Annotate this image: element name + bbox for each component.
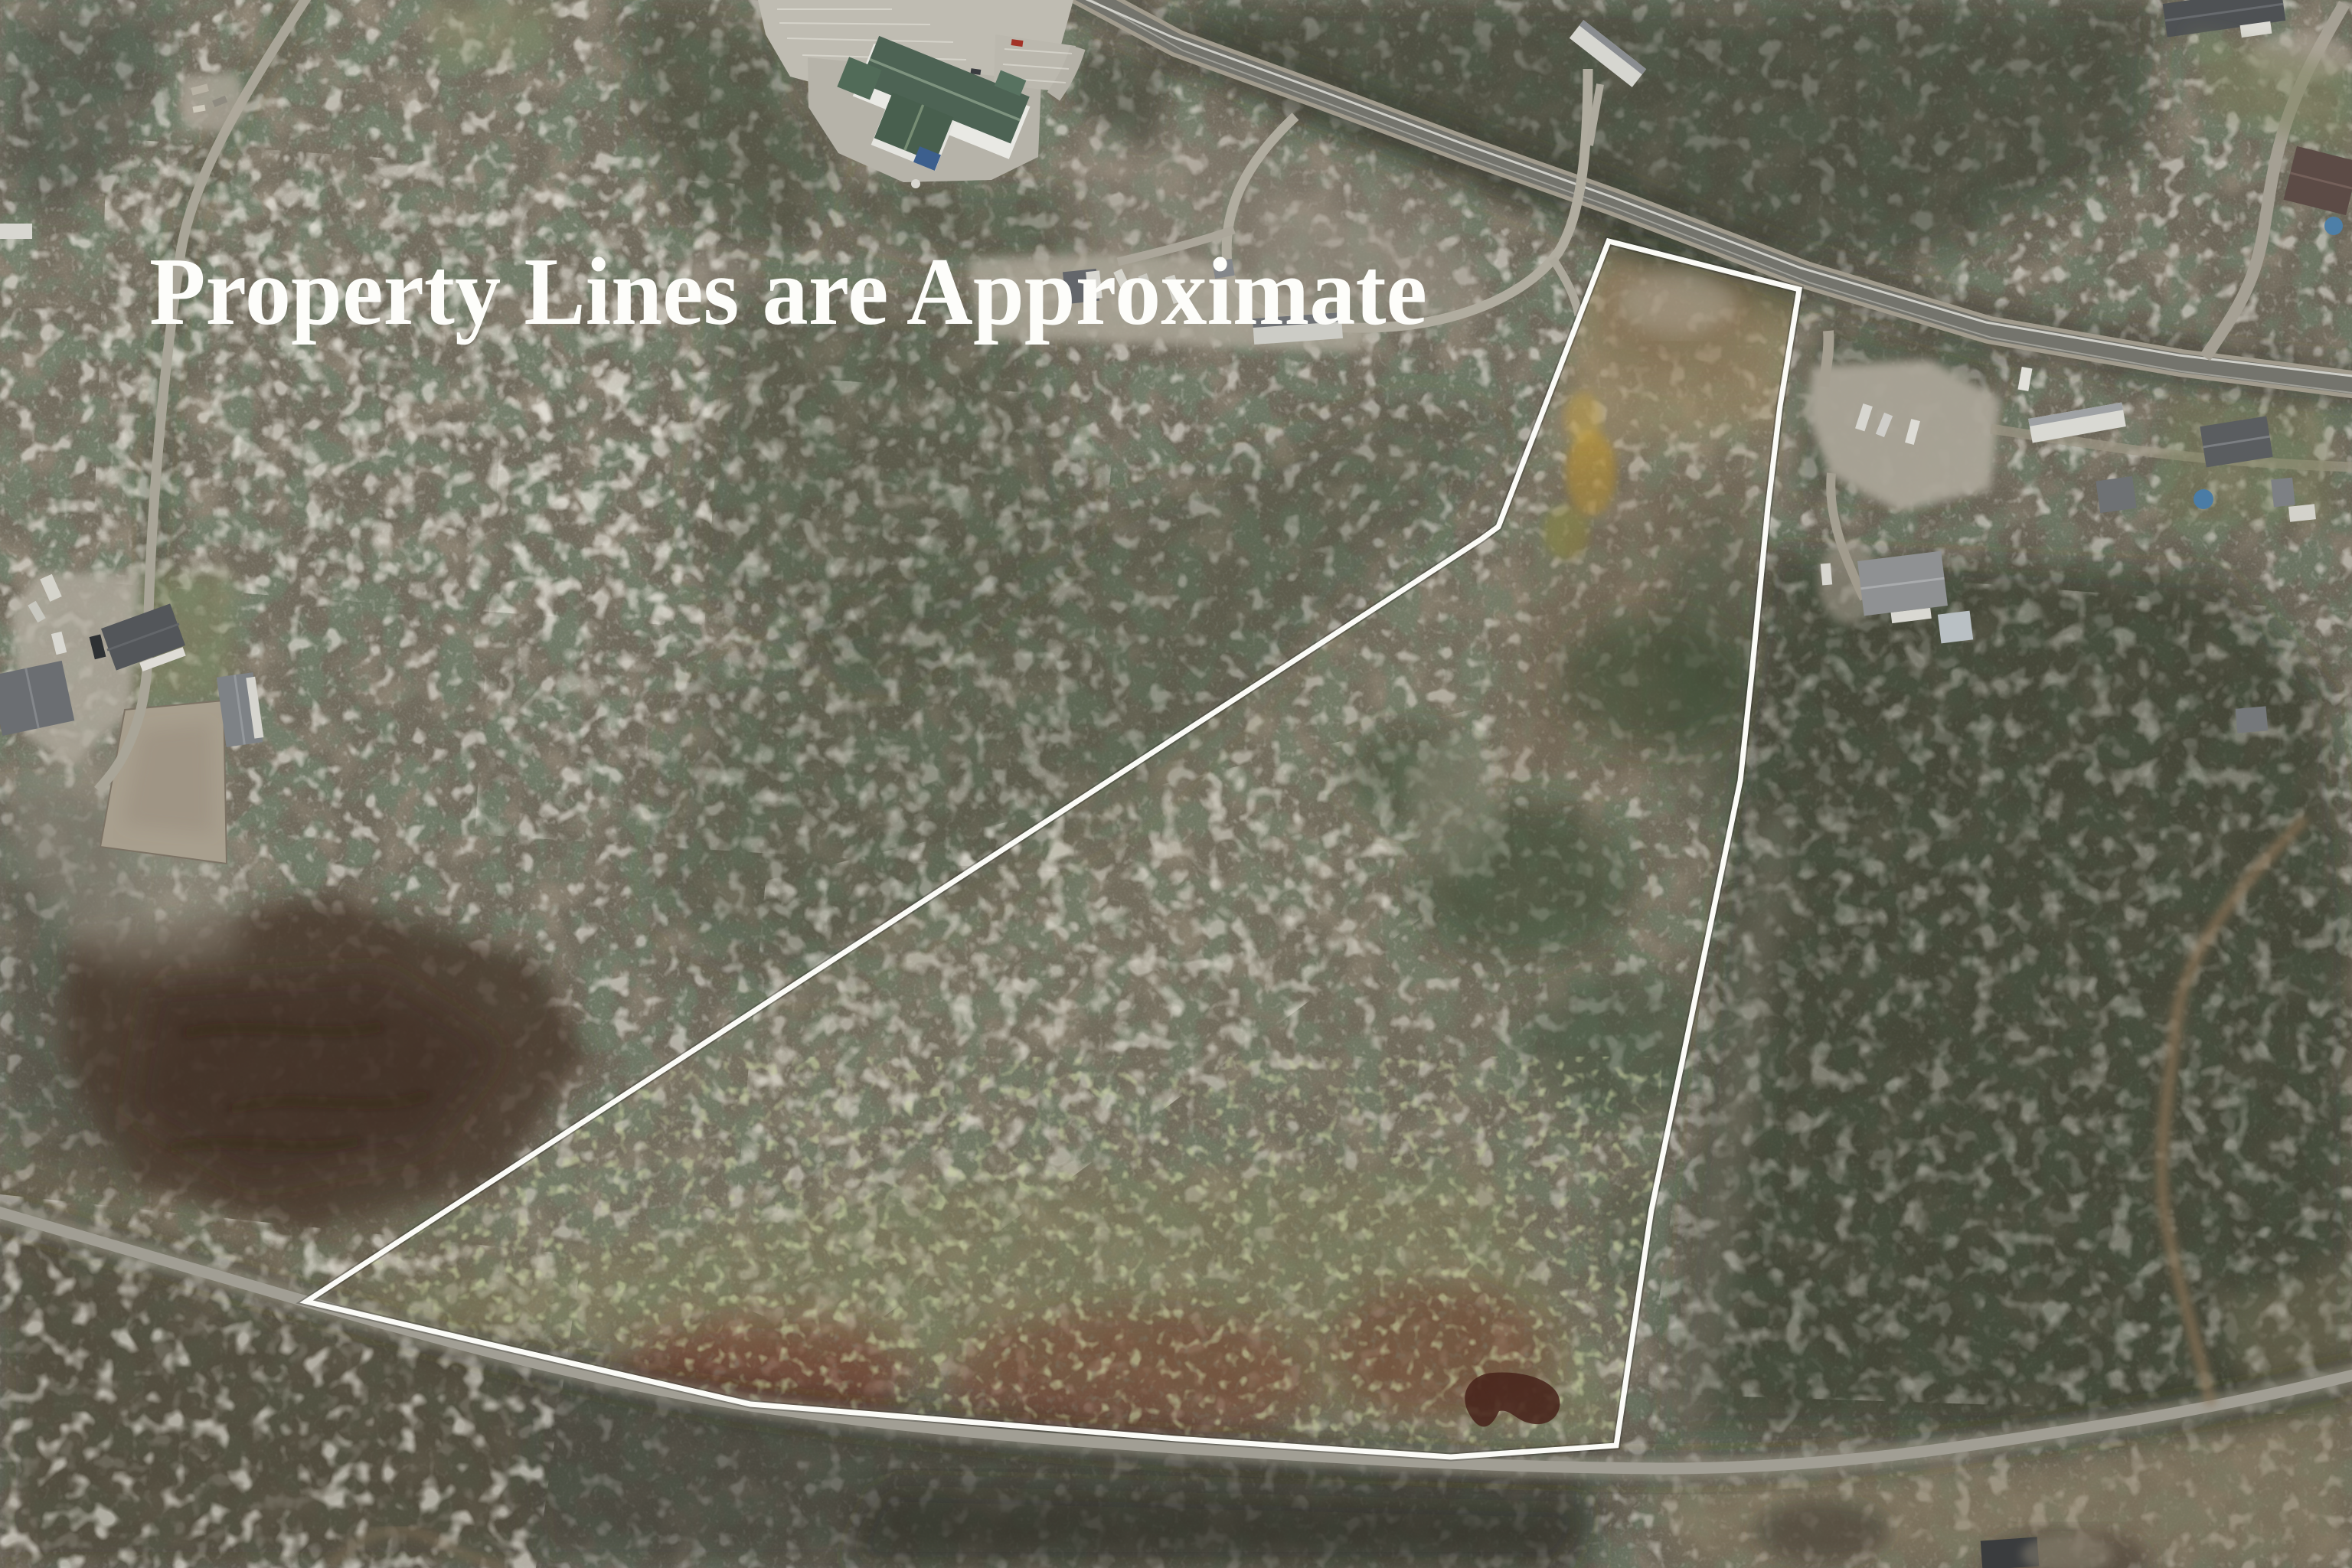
svg-text:Property Lines are Approximate: Property Lines are Approximate <box>149 239 1427 345</box>
